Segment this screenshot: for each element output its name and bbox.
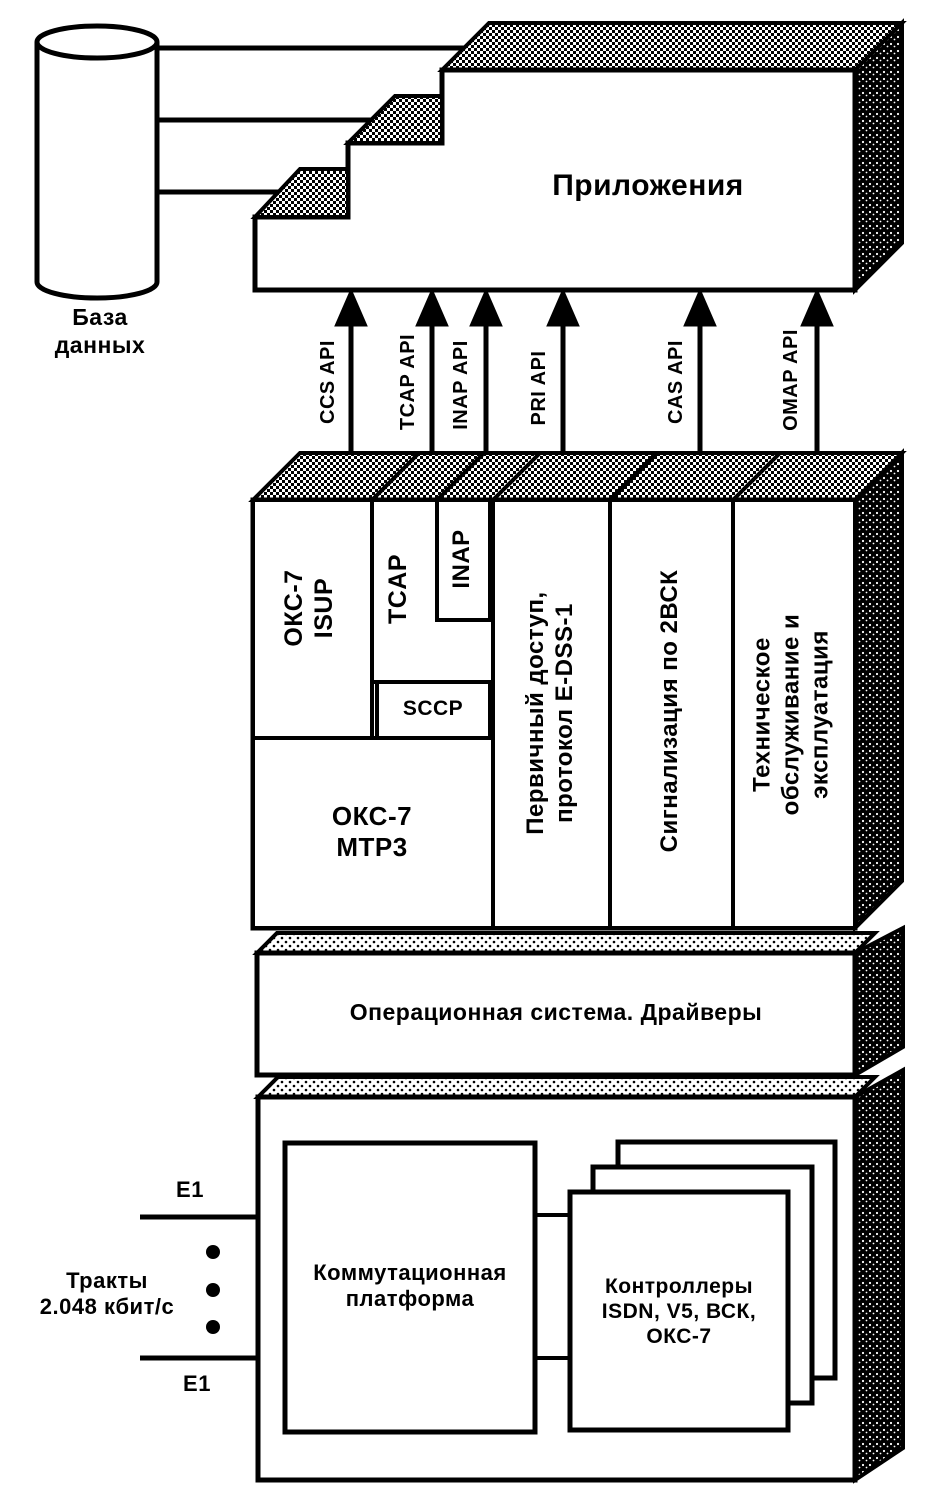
database-label: База данных (30, 304, 170, 360)
sccp-label: SCCP (383, 696, 483, 722)
pri-api-arrow (550, 294, 576, 478)
applications-box (255, 23, 902, 290)
controllers-label: Контроллеры ISDN, V5, ВСК, ОКС-7 (569, 1271, 789, 1352)
tcap-api-label: TCAP API (396, 322, 420, 442)
mtp3-label: ОКС-7 МТР3 (292, 801, 452, 863)
diagram-page: База данных Приложения CCS API TCAP API … (0, 0, 950, 1492)
omap-api-label: OMAP API (779, 320, 803, 440)
ellipsis-dots-icon (206, 1245, 220, 1334)
pri-api-label: PRI API (527, 328, 551, 448)
applications-label: Приложения (498, 166, 798, 206)
inap-api-arrow (473, 294, 499, 478)
tcap-label: TCAP (384, 519, 412, 659)
signaling-2vsk-label: Сигнализация по 2ВСК (656, 521, 684, 901)
cas-api-label: CAS API (664, 322, 688, 442)
primary-access-label: Первичный доступ, протокол E-DSS-1 (520, 533, 582, 893)
e1-top-label: E1 (160, 1177, 220, 1203)
tcap-api-arrow (419, 294, 445, 478)
maintenance-label: Техническое обслуживание и эксплуатация (746, 525, 839, 905)
inap-label: INAP (449, 504, 475, 614)
inap-api-label: INAP API (449, 325, 473, 445)
e1-bottom-label: E1 (167, 1371, 227, 1397)
switching-platform-label: Коммутационная платформа (290, 1257, 530, 1315)
isup-label: ОКС-7 ISUP (279, 528, 339, 688)
cas-api-arrow (687, 294, 713, 478)
os-label: Операционная система. Драйверы (306, 998, 806, 1028)
ccs-api-label: CCS API (316, 322, 340, 442)
database-cylinder-icon (37, 26, 157, 298)
omap-api-arrow (804, 294, 830, 478)
trunks-label: Тракты 2.048 кбит/с (12, 1267, 202, 1321)
ccs-api-arrow (338, 294, 364, 478)
